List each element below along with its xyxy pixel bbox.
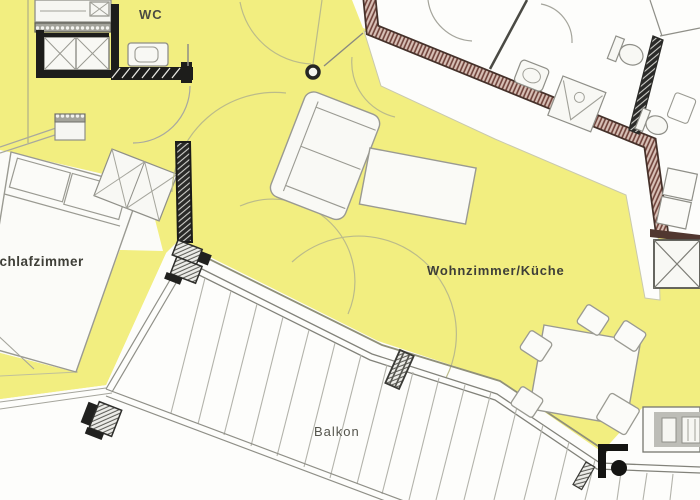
svg-text:Balkon: Balkon — [314, 424, 360, 439]
svg-text:Schlafzimmer: Schlafzimmer — [0, 254, 84, 269]
svg-text:Wohnzimmer/Küche: Wohnzimmer/Küche — [427, 263, 565, 278]
svg-text:WC: WC — [139, 7, 163, 22]
